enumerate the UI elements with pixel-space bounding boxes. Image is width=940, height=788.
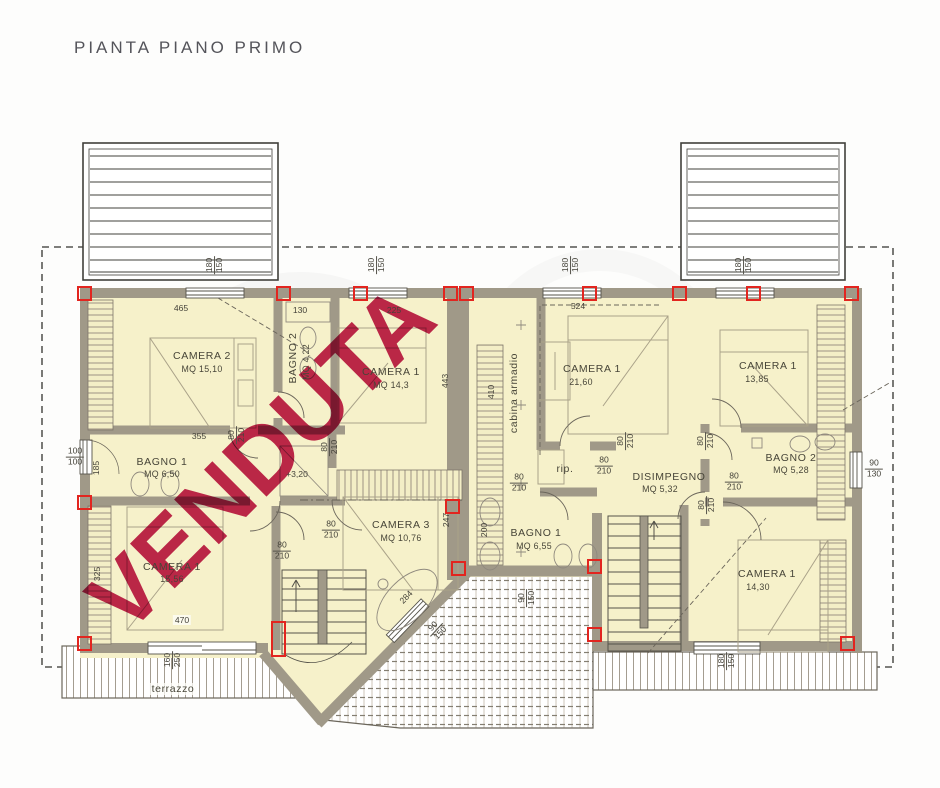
room-label-bagno2-left: BAGNO 2 [287, 333, 299, 384]
room-label-bagno1-right: BAGNO 1 [511, 527, 562, 539]
dim-355: 355 [192, 431, 206, 441]
dim-465: 465 [174, 303, 188, 313]
dim-door-80-210-d: 80210 [725, 472, 743, 493]
dim-524: 524 [571, 301, 585, 311]
dim-door-80-210-v4: 80210 [696, 432, 716, 450]
dim-window-90-130: 90130 [865, 459, 883, 480]
room-label-disimpegno: DISIMPEGNO [632, 471, 705, 483]
dim-door-80-210-v3: 80210 [616, 432, 636, 450]
room-area-camera1-center: 21,60 [569, 377, 593, 387]
room-label-bagno1-left: BAGNO 1 [137, 456, 188, 468]
dim-door-80-210-b: 80210 [322, 520, 340, 541]
room-area-camera1-bottomright: 14,30 [746, 582, 770, 592]
dim-window-160-250: 160250 [163, 651, 183, 669]
room-area-bagno1-right: MQ 6,55 [516, 541, 552, 551]
room-area-camera1-left: 15,56 [160, 574, 184, 584]
dim-225: 225 [387, 305, 401, 315]
dim-470: 470 [173, 615, 191, 625]
room-area-camera-mid: MQ 14,3 [373, 380, 409, 390]
pergola-left [83, 143, 278, 280]
room-label-rip: rip. [557, 463, 574, 475]
room-area-camera3: MQ 10,76 [380, 533, 421, 543]
room-area-bagno1-left: MQ 6,50 [144, 469, 180, 479]
room-label-camera1-bottomright: CAMERA 1 [738, 568, 796, 580]
dim-window-100-100: 100100 [66, 447, 84, 468]
room-area-bagno2-left: MQ 4,22 [301, 344, 311, 380]
dim-door-80-210-v2: 80210 [320, 438, 340, 456]
room-label-camera2: CAMERA 2 [173, 350, 231, 362]
floorplan-page: PIANTA PIANO PRIMO VENDUTA CAMERA 2 MQ 1… [0, 0, 940, 788]
dim-door-80-210-c: 80210 [595, 456, 613, 477]
dim-443: 443 [440, 374, 450, 388]
room-area-camera1-topright: 13,85 [745, 374, 769, 384]
room-area-bagno2-right: MQ 5,28 [773, 465, 809, 475]
room-label-camera1-center: CAMERA 1 [563, 363, 621, 375]
dim-window-180-150-5: 180150 [717, 652, 737, 670]
room-label-camera1-topright: CAMERA 1 [739, 360, 797, 372]
dim-325: 325 [92, 567, 102, 581]
dim-window-180-150-4: 180150 [734, 256, 754, 274]
dim-window-90-150-v: 90150 [517, 589, 537, 607]
dim-window-180-150-2: 180150 [367, 256, 387, 274]
dim-410: 410 [486, 385, 496, 399]
room-label-terrazzo: terrazzo [150, 683, 197, 695]
room-area-camera2: MQ 15,10 [181, 364, 222, 374]
dim-window-180-150-3: 180150 [561, 256, 581, 274]
dim-185: 185 [91, 461, 101, 475]
room-label-camera1-left: CAMERA 1 [143, 561, 201, 573]
room-area-disimpegno: MQ 5,32 [642, 484, 678, 494]
room-label-camera-mid: CAMERA 1 [362, 366, 420, 378]
dim-door-80-210-v5: 80210 [697, 496, 717, 514]
room-label-bagno2-right: BAGNO 2 [766, 452, 817, 464]
dim-130: 130 [293, 305, 307, 315]
pergola-right [681, 143, 845, 280]
dim-247: 247 [441, 513, 451, 527]
dim-door-80-210-a: 80210 [273, 541, 291, 562]
dim-200: 200 [479, 523, 489, 537]
room-label-camera3: CAMERA 3 [372, 519, 430, 531]
dim-quota: +3,20 [286, 469, 308, 479]
dim-window-180-150-1: 180150 [205, 256, 225, 274]
page-title: PIANTA PIANO PRIMO [74, 38, 305, 58]
room-label-cabina-armadio: cabina armadio [508, 353, 520, 433]
dim-door-80-210-v1: 80210 [227, 426, 247, 444]
dim-door-80-210-e: 80210 [510, 473, 528, 494]
floorplan-drawing [0, 0, 940, 788]
